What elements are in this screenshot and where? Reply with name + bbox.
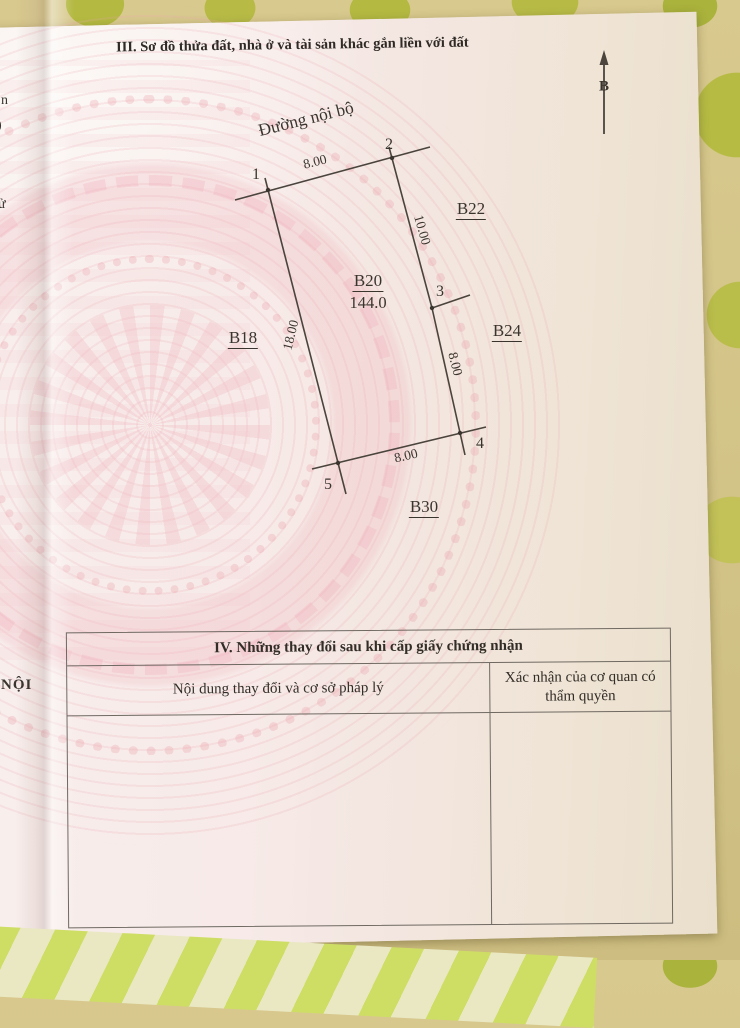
changes-table: IV. Những thay đổi sau khi cấp giấy chứn… [66,628,673,929]
edge-fragment-1: n [1,93,8,109]
plot-b20-label: B20 144.0 [349,271,386,313]
neighbor-plot-b30: B30 [409,497,439,517]
point-3-label: 3 [436,283,444,301]
neighbor-plot-b22: B22 [456,199,486,219]
edge-fragment-2: ) [0,118,2,134]
point-5-label: 5 [324,476,332,494]
changes-table-title: IV. Những thay đổi sau khi cấp giấy chứn… [67,629,670,667]
changes-table-header: Nội dung thay đổi và cơ sở pháp lý Xác n… [67,662,670,717]
north-label: B [599,79,609,96]
plot-id: B20 [353,271,383,292]
neighbor-plot-b24: B24 [492,321,522,341]
col-header-content: Nội dung thay đổi và cơ sở pháp lý [67,663,490,715]
changes-table-body [68,712,673,928]
edge-left-1-5 [265,178,346,494]
edge-fragment-3: ử [0,197,6,213]
vertex-4 [458,431,462,435]
plot-area: 144.0 [349,293,386,313]
point-2-label: 2 [385,136,393,154]
cell-confirm-empty [490,712,672,924]
neighbor-plot-b18: B18 [228,328,258,348]
edge-fragment-noi: NỘI [1,677,32,694]
point-4-label: 4 [476,435,484,453]
vertex-2 [390,156,394,160]
cell-content-empty [68,713,493,927]
vertex-5 [336,461,340,465]
point-1-label: 1 [252,166,260,184]
col-header-confirm: Xác nhận của cơ quan có thẩm quyền [490,662,670,712]
vertex-1 [266,188,270,192]
vertex-3 [430,306,434,310]
